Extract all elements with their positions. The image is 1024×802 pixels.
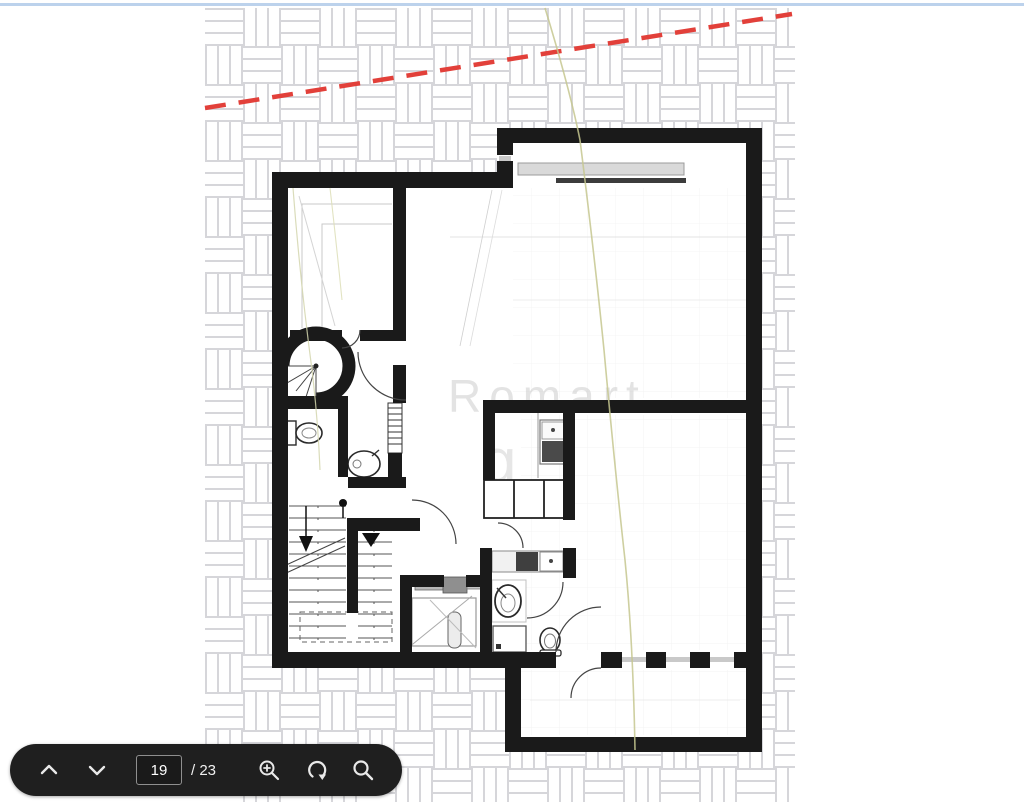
floor-plan-document: Romart g: [0, 0, 1024, 802]
zoom-in-button[interactable]: [252, 753, 286, 787]
search-button[interactable]: [346, 753, 380, 787]
rotate-ccw-icon: [305, 758, 329, 782]
zoom-in-icon: [257, 758, 281, 782]
pdf-viewer-screen: Romart g: [0, 0, 1024, 802]
search-icon: [351, 758, 375, 782]
pdf-toolbar: / 23: [10, 744, 402, 796]
top-border-line: [0, 3, 1024, 6]
glass-block-wall: [388, 403, 402, 453]
page-total-label: / 23: [191, 762, 216, 779]
spiral-staircase: [283, 333, 349, 399]
next-page-button[interactable]: [80, 753, 114, 787]
watermark-text-1: Romart: [448, 370, 647, 422]
chevron-down-icon: [86, 759, 108, 781]
chevron-up-icon: [38, 759, 60, 781]
previous-page-button[interactable]: [32, 753, 66, 787]
rotate-button[interactable]: [300, 753, 334, 787]
page-number-input[interactable]: [136, 755, 182, 785]
